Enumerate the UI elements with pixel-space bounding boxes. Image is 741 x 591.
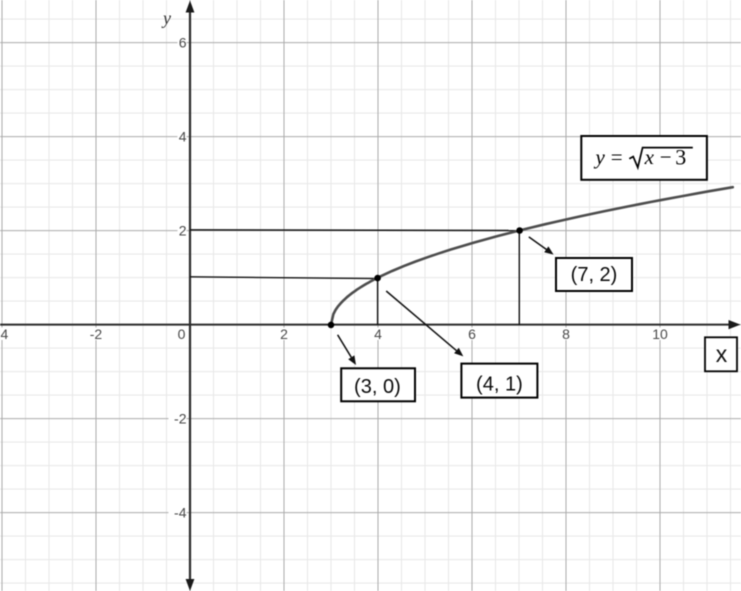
svg-text:8: 8 [562,326,570,342]
svg-text:2: 2 [280,326,288,342]
svg-text:y: y [161,8,171,28]
svg-text:−: − [660,145,672,169]
svg-text:10: 10 [652,326,668,342]
svg-text:-2: -2 [174,411,187,427]
svg-text:-4: -4 [174,505,187,521]
svg-text:2: 2 [179,223,187,239]
svg-text:6: 6 [179,35,187,51]
svg-text:-2: -2 [90,326,103,342]
svg-text:y: y [594,145,606,169]
svg-text:=: = [611,145,623,169]
svg-text:(7, 2): (7, 2) [571,264,618,286]
svg-text:x: x [644,145,655,169]
svg-text:0: 0 [178,326,186,342]
svg-text:6: 6 [468,326,476,342]
svg-text:4: 4 [179,129,187,145]
svg-text:(3, 0): (3, 0) [354,376,401,398]
svg-text:x: x [716,341,728,367]
svg-text:3: 3 [675,145,686,170]
svg-text:4: 4 [374,326,382,342]
svg-text:(4, 1): (4, 1) [476,373,523,395]
svg-text:-4: -4 [0,326,8,342]
